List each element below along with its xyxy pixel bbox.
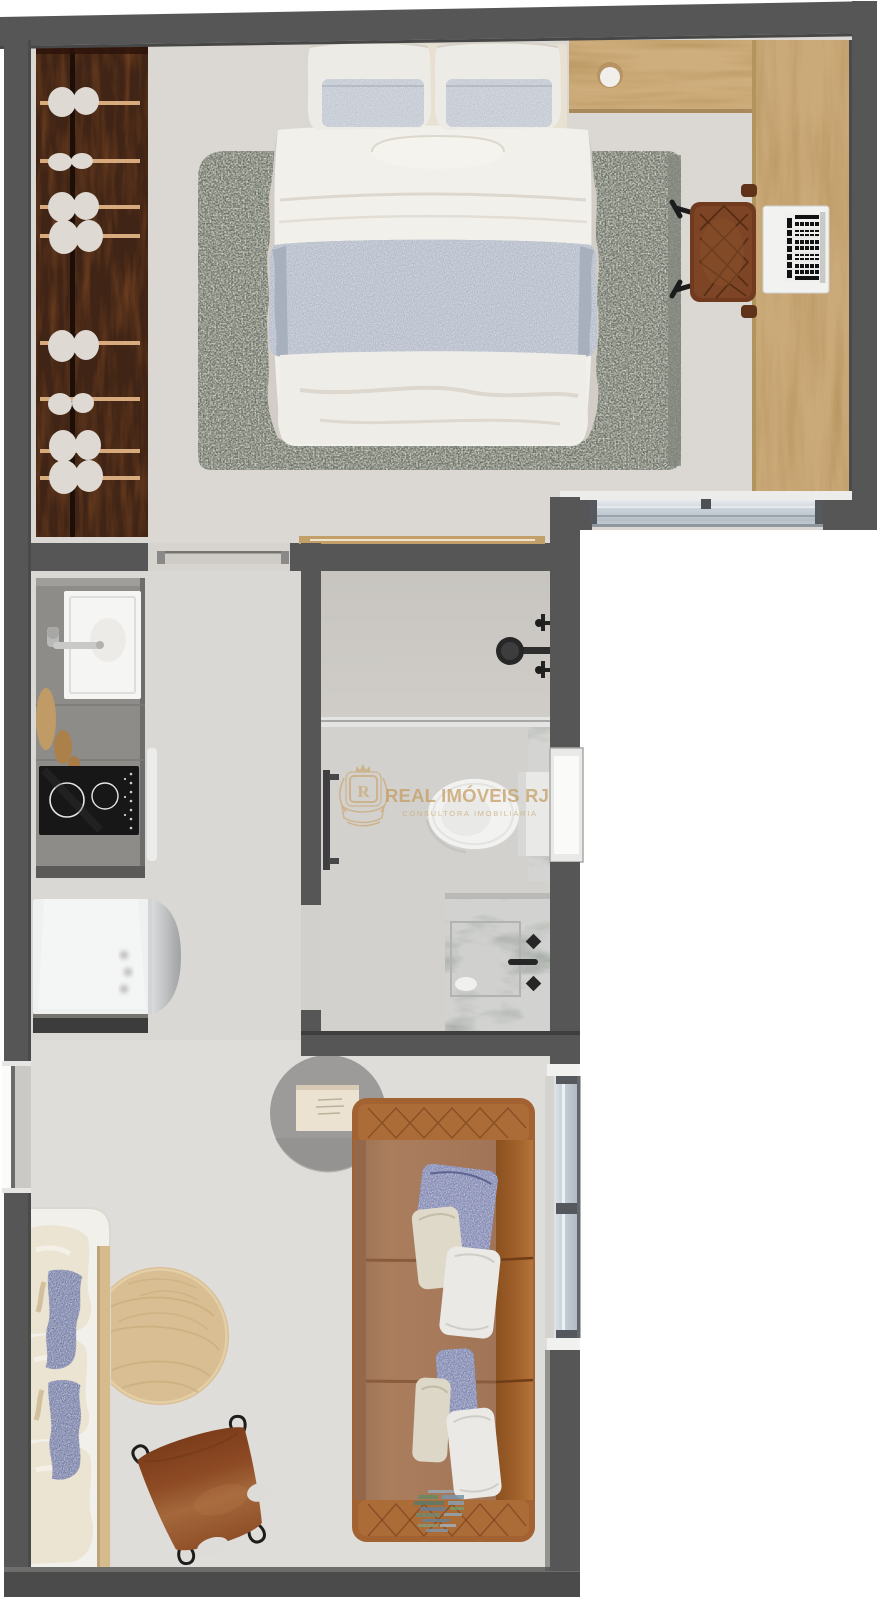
svg-text:R: R bbox=[357, 782, 370, 801]
svg-text:REAL IMÓVEIS RJ: REAL IMÓVEIS RJ bbox=[385, 785, 549, 806]
svg-text:CONSULTORA IMOBILIÁRIA: CONSULTORA IMOBILIÁRIA bbox=[402, 809, 537, 818]
